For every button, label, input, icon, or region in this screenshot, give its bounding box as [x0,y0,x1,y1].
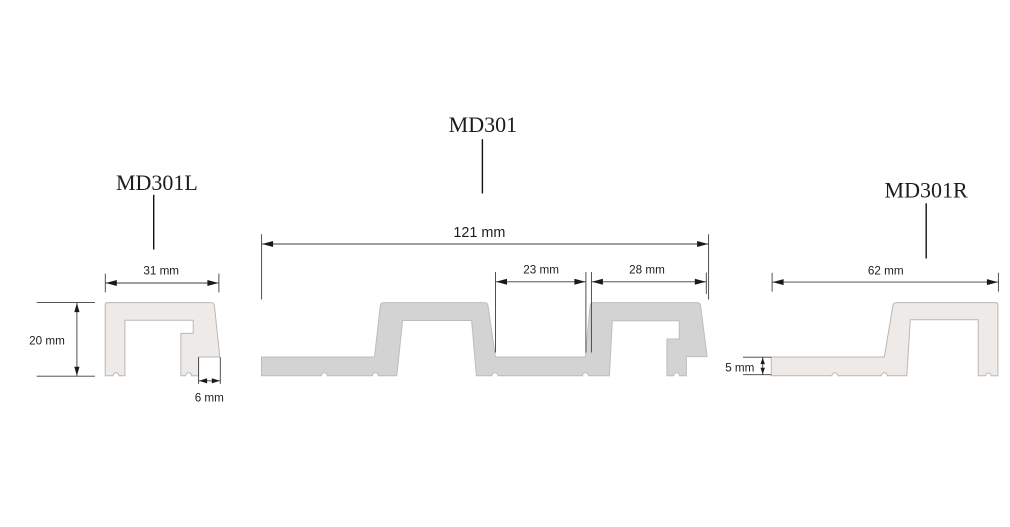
svg-text:121 mm: 121 mm [453,225,505,241]
svg-text:MD301: MD301 [449,112,517,137]
svg-text:MD301L: MD301L [116,170,198,195]
svg-text:6 mm: 6 mm [195,391,224,404]
svg-text:31 mm: 31 mm [143,265,179,278]
svg-text:MD301R: MD301R [885,178,968,203]
svg-text:5 mm: 5 mm [725,362,754,375]
svg-text:20 mm: 20 mm [29,335,65,348]
svg-text:28 mm: 28 mm [629,264,665,277]
svg-text:23 mm: 23 mm [523,264,559,277]
svg-text:62 mm: 62 mm [868,265,904,278]
